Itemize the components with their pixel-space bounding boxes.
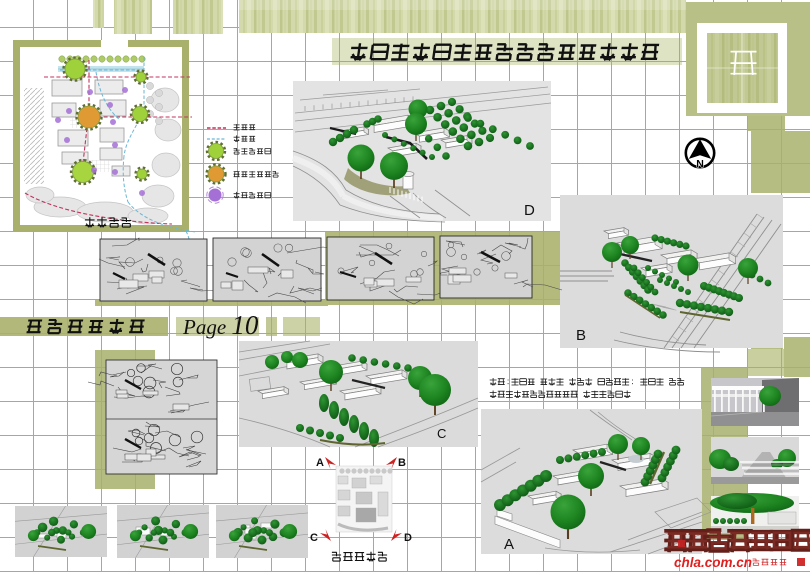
svg-text:Page 10: Page 10 [182, 310, 259, 340]
svg-text:N: N [696, 158, 704, 170]
svg-text:C: C [437, 426, 446, 441]
svg-text:A: A [504, 536, 514, 553]
svg-text:B: B [576, 327, 586, 344]
svg-text:D: D [524, 202, 535, 219]
svg-text:A: A [316, 457, 324, 469]
svg-text:B: B [398, 457, 406, 469]
svg-text:C: C [310, 532, 318, 544]
svg-text:D: D [404, 532, 412, 544]
svg-text:chla.com.cn: chla.com.cn [674, 555, 752, 570]
